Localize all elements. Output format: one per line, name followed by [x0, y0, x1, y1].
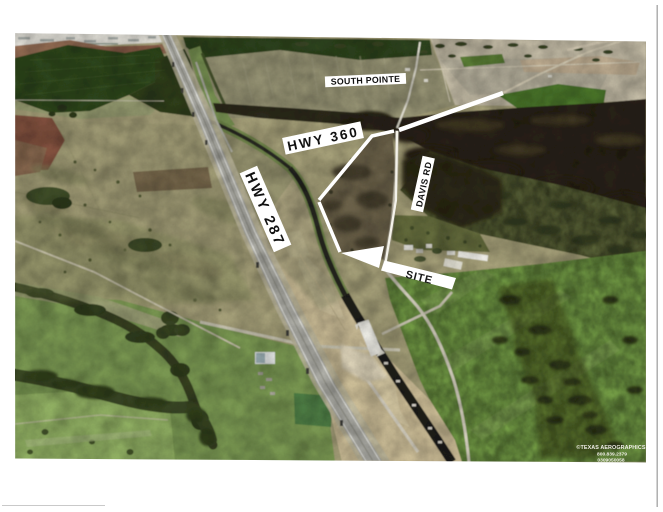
svg-text:©TEXAS AEROGRAPHICS: ©TEXAS AEROGRAPHICS [576, 444, 645, 451]
svg-text:800.839.2379: 800.839.2379 [597, 452, 627, 458]
